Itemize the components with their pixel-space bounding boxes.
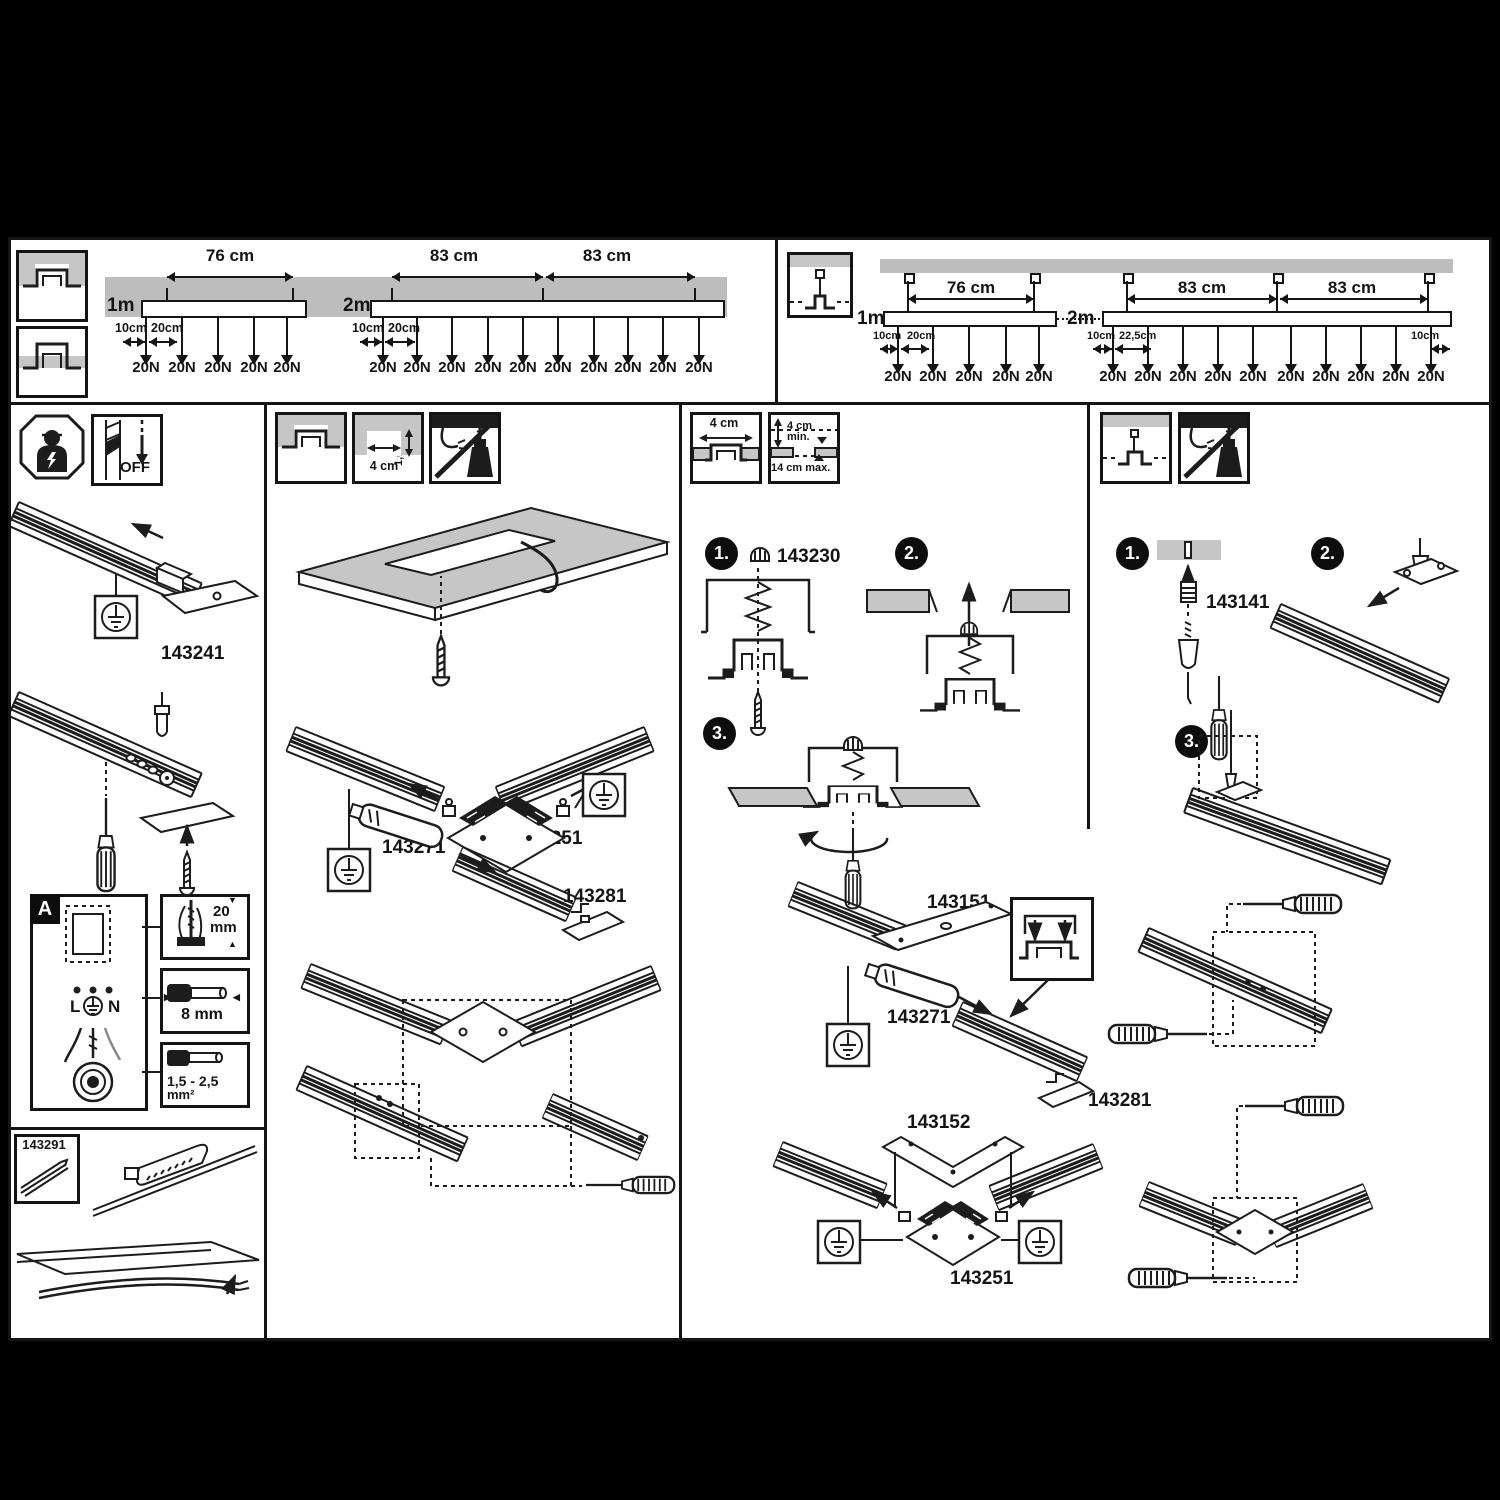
diagram-artwork <box>11 240 1489 1338</box>
suspended-joint-corner-diagram <box>1129 1097 1373 1287</box>
suspended-profile-icon-art <box>1103 415 1169 464</box>
cover-plate-straight-diagram <box>788 882 1093 1107</box>
ceiling-cutout-diagram <box>299 508 667 685</box>
step3-fasten-art <box>1184 676 1390 884</box>
cover-profile-art <box>21 1160 68 1196</box>
recessed-thin-icon-art <box>19 344 85 368</box>
slot-dimension-icon-art <box>355 415 421 457</box>
electrician-icon <box>21 416 83 478</box>
suspended-icon-art <box>790 255 850 308</box>
no-drill-icon-art-b <box>1181 415 1247 477</box>
terminal-box-art <box>65 906 160 1101</box>
slot-width-icon-art <box>693 434 759 460</box>
corner-assembly-diagram <box>286 727 653 940</box>
step2-insert-art <box>867 584 1069 710</box>
recessed-thick-icon-art <box>19 253 85 286</box>
step1-suspension-art <box>1157 540 1221 704</box>
mains-connection-diagram <box>11 692 233 895</box>
instruction-page: 1m 76 cm 10cm 20cm 20N 20N 20N 20N 20N 2… <box>0 0 1500 1500</box>
depth-range-icon-art <box>771 418 837 461</box>
power-off-icon-art <box>106 420 148 480</box>
recessed-profile-icon-art <box>278 415 344 447</box>
no-drill-icon-art <box>432 415 498 477</box>
strip-length-art <box>177 900 205 946</box>
recessed-joint-diagram <box>296 964 674 1193</box>
step1-clamp-art <box>701 548 815 735</box>
saw-cutting-art <box>93 1145 257 1216</box>
cover-plate-corner-diagram <box>773 1137 1102 1265</box>
cover-snap-in-art <box>17 1242 259 1298</box>
instruction-sheet: 1m 76 cm 10cm 20cm 20N 20N 20N 20N 20N 2… <box>8 237 1492 1341</box>
feed-connector-diagram <box>11 502 257 638</box>
step2-plate-art <box>1270 538 1457 703</box>
suspended-joint-straight-diagram <box>1109 895 1341 1046</box>
cross-section-art <box>167 1050 222 1066</box>
step3-tighten-art <box>729 737 979 908</box>
ferrule-art <box>167 984 226 1002</box>
